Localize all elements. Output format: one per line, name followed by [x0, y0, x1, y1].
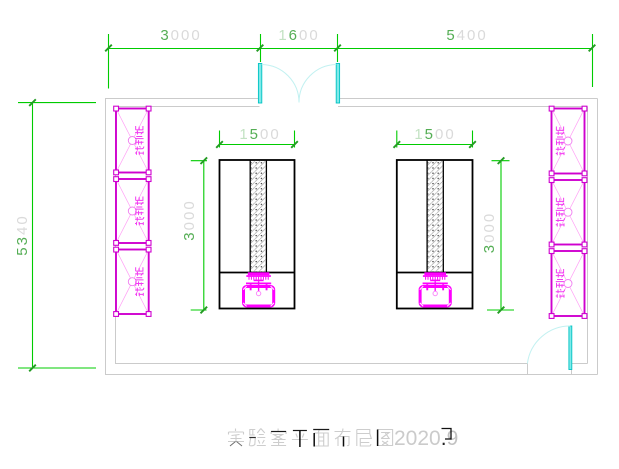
svg-text:3000: 3000 — [181, 199, 198, 240]
svg-text:1600: 1600 — [278, 27, 319, 44]
svg-text:1500: 1500 — [239, 126, 280, 143]
svg-text:5400: 5400 — [446, 27, 487, 44]
svg-text:1500: 1500 — [414, 126, 455, 143]
svg-text:3000: 3000 — [481, 212, 498, 253]
svg-text:5340: 5340 — [14, 214, 31, 255]
svg-text:3000: 3000 — [160, 27, 201, 44]
